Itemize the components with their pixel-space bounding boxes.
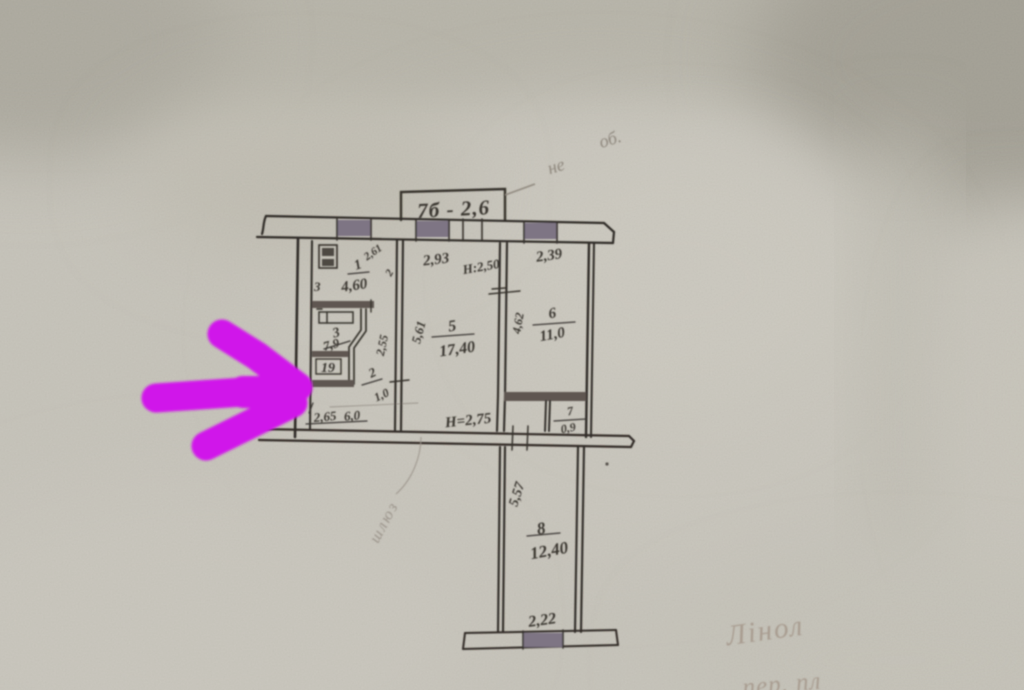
svg-text:3: 3 <box>313 279 321 294</box>
svg-text:19: 19 <box>321 361 335 376</box>
svg-text:2,93: 2,93 <box>421 250 450 269</box>
